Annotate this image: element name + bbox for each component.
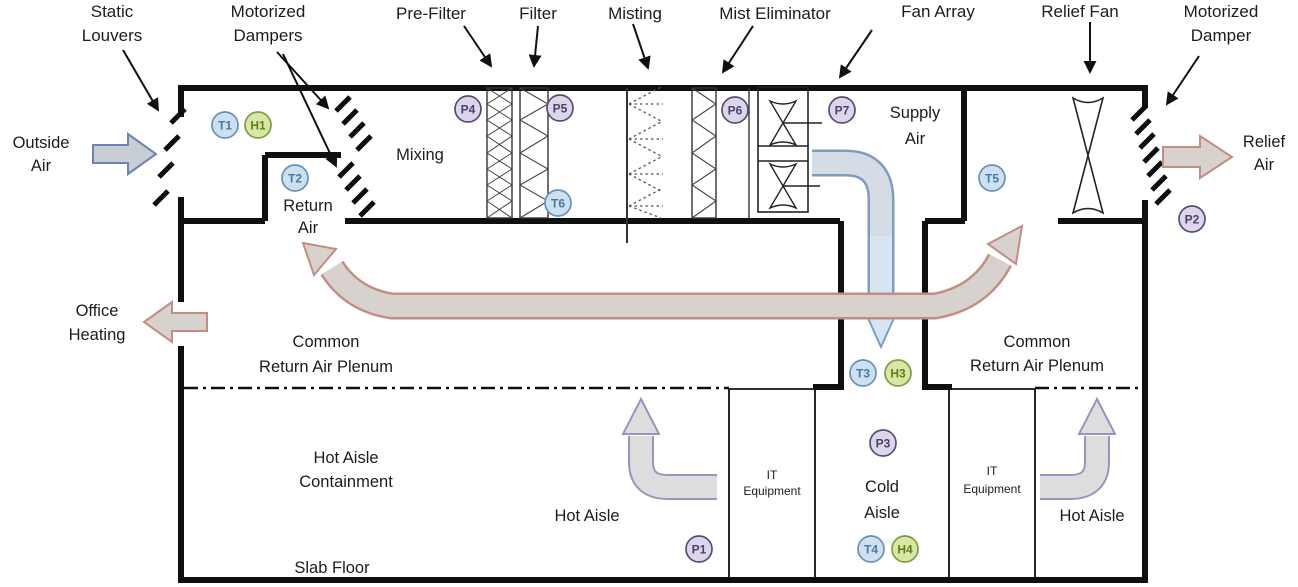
sensor-T1: T1 bbox=[212, 112, 238, 138]
sensor-P3: P3 bbox=[870, 430, 896, 456]
hot-aisle-left-flow-arrow bbox=[623, 399, 717, 487]
sensor-H1-label: H1 bbox=[250, 119, 266, 133]
relief-fan-symbol bbox=[1073, 98, 1103, 213]
mist-eliminator-label: Mist Eliminator bbox=[719, 4, 831, 23]
sensor-H4-label: H4 bbox=[897, 543, 913, 557]
common-return-air-plenum-right-label: CommonReturn Air Plenum bbox=[970, 333, 1104, 375]
mist-eliminator-symbol bbox=[692, 88, 716, 218]
pre-filter-label: Pre-Filter bbox=[396, 4, 466, 23]
filter-label: Filter bbox=[519, 4, 557, 23]
motorized-damper-label: MotorizedDamper bbox=[1184, 2, 1259, 45]
diagram-canvas: StaticLouvers MotorizedDampers Pre-Filte… bbox=[0, 0, 1298, 587]
sensor-P5-label: P5 bbox=[553, 102, 568, 116]
relief-air-label: ReliefAir bbox=[1243, 133, 1286, 174]
sensor-H3-label: H3 bbox=[890, 367, 906, 381]
relief-air-arrow bbox=[1163, 136, 1232, 178]
sensor-H3: H3 bbox=[885, 360, 911, 386]
it-equipment-right-label: ITEquipment bbox=[963, 464, 1021, 496]
motorized-damper-upper-symbol bbox=[336, 97, 371, 150]
outside-air-label: OutsideAir bbox=[13, 134, 70, 175]
motorized-dampers-pointer-lower bbox=[283, 54, 336, 166]
sensor-T6-label: T6 bbox=[551, 197, 565, 211]
sensor-T2: T2 bbox=[282, 165, 308, 191]
motorized-damper-lower-symbol bbox=[339, 163, 374, 216]
hot-aisle-left-label: Hot Aisle bbox=[554, 507, 619, 525]
sensor-H1: H1 bbox=[245, 112, 271, 138]
sensor-T4: T4 bbox=[858, 536, 884, 562]
slab-floor-label: Slab Floor bbox=[294, 559, 370, 577]
mist-eliminator-pointer bbox=[723, 26, 753, 72]
office-heating-arrow bbox=[144, 302, 207, 342]
misting-label: Misting bbox=[608, 4, 662, 23]
filter-pointer bbox=[534, 26, 538, 66]
sensor-P6: P6 bbox=[722, 97, 748, 123]
sensor-P6-label: P6 bbox=[728, 104, 743, 118]
sensor-P2-label: P2 bbox=[1185, 213, 1200, 227]
static-louvers-pointer bbox=[123, 50, 158, 110]
sensor-T1-label: T1 bbox=[218, 119, 232, 133]
return-air-label: ReturnAir bbox=[283, 197, 333, 237]
misting-pointer bbox=[633, 24, 648, 68]
fan-array-label: Fan Array bbox=[901, 2, 975, 21]
outside-air-arrow bbox=[93, 134, 156, 174]
sensor-P4: P4 bbox=[455, 96, 481, 122]
motorized-dampers-label: MotorizedDampers bbox=[231, 2, 306, 45]
sensor-T3: T3 bbox=[850, 360, 876, 386]
fan-array-pointer bbox=[840, 30, 872, 77]
sensor-P3-label: P3 bbox=[876, 437, 891, 451]
sensor-P2: P2 bbox=[1179, 206, 1205, 232]
hot-aisle-right-flow-arrow bbox=[1040, 399, 1115, 487]
sensor-T5: T5 bbox=[979, 165, 1005, 191]
sensor-T4-label: T4 bbox=[864, 543, 878, 557]
pre-filter-pointer bbox=[464, 26, 491, 66]
sensor-P4-label: P4 bbox=[461, 103, 476, 117]
static-louvers-label: StaticLouvers bbox=[82, 2, 142, 45]
cold-aisle-label: ColdAisle bbox=[864, 478, 900, 522]
common-return-air-plenum-left-label: CommonReturn Air Plenum bbox=[259, 333, 393, 376]
sensor-T3-label: T3 bbox=[856, 367, 870, 381]
airflow-diagram: StaticLouvers MotorizedDampers Pre-Filte… bbox=[0, 0, 1298, 587]
static-louvers-symbol bbox=[154, 109, 185, 205]
filter-symbol bbox=[520, 88, 548, 218]
hot-aisle-containment-label: Hot AisleContainment bbox=[299, 449, 393, 491]
sensor-H4: H4 bbox=[892, 536, 918, 562]
sensor-P5: P5 bbox=[547, 95, 573, 121]
relief-fan-label: Relief Fan bbox=[1041, 2, 1118, 21]
sensor-P1: P1 bbox=[686, 536, 712, 562]
office-heating-label: OfficeHeating bbox=[69, 302, 126, 344]
motorized-dampers-pointer-upper bbox=[277, 52, 328, 108]
hot-aisle-right-label: Hot Aisle bbox=[1059, 507, 1124, 525]
return-air-flow-arrow bbox=[303, 226, 1022, 306]
sensor-P7-label: P7 bbox=[835, 104, 850, 118]
it-equipment-left-label: ITEquipment bbox=[743, 468, 801, 498]
motorized-damper-pointer bbox=[1167, 56, 1199, 104]
fan-array-symbol bbox=[749, 87, 822, 218]
sensor-P1-label: P1 bbox=[692, 543, 707, 557]
sensor-T5-label: T5 bbox=[985, 172, 999, 186]
supply-air-label: SupplyAir bbox=[890, 104, 941, 148]
pre-filter-symbol bbox=[487, 88, 512, 218]
sensor-T6: T6 bbox=[545, 190, 571, 216]
sensor-T2-label: T2 bbox=[288, 172, 302, 186]
mixing-label: Mixing bbox=[396, 146, 444, 164]
sensor-P7: P7 bbox=[829, 97, 855, 123]
